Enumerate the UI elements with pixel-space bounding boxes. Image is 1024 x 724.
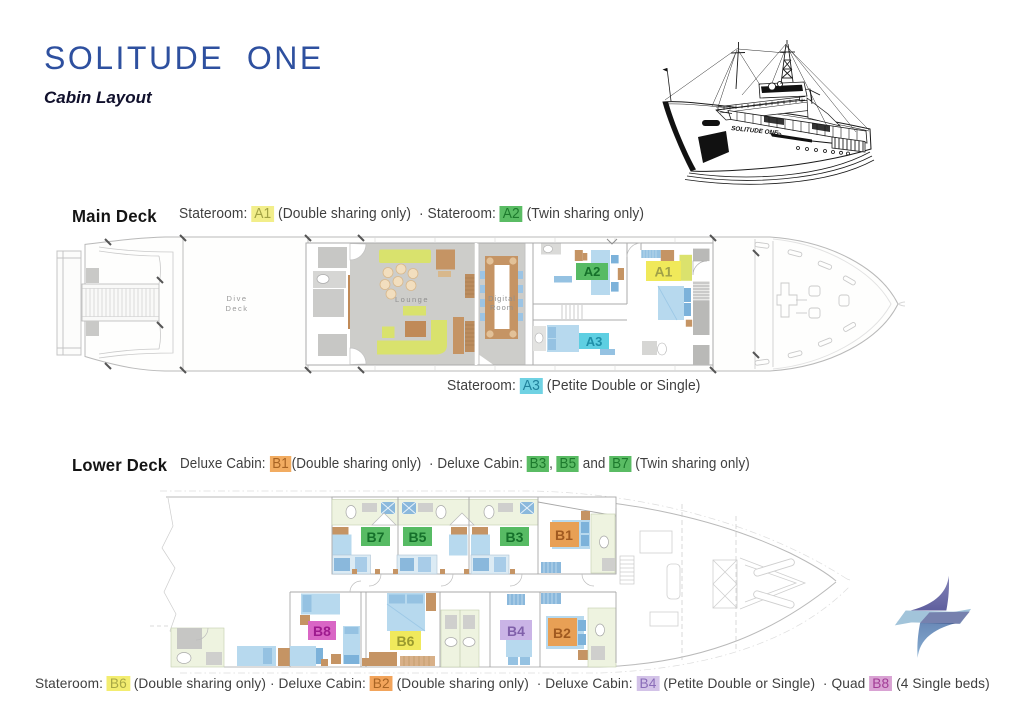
svg-text:Digital: Digital <box>488 294 516 303</box>
svg-text:Lounge: Lounge <box>395 295 429 304</box>
svg-text:B7: B7 <box>367 529 385 545</box>
svg-text:Deck: Deck <box>225 304 248 313</box>
svg-text:B8: B8 <box>313 623 331 639</box>
svg-text:A2: A2 <box>584 264 601 279</box>
svg-text:Dive: Dive <box>226 294 247 303</box>
svg-text:B3: B3 <box>506 529 524 545</box>
svg-text:A3: A3 <box>586 334 603 349</box>
svg-text:B2: B2 <box>553 625 571 641</box>
svg-text:B4: B4 <box>507 623 525 639</box>
svg-text:B5: B5 <box>409 529 427 545</box>
svg-text:Room: Room <box>490 303 514 312</box>
svg-text:A1: A1 <box>655 264 673 280</box>
svg-text:B6: B6 <box>397 633 415 649</box>
svg-text:B1: B1 <box>555 527 573 543</box>
